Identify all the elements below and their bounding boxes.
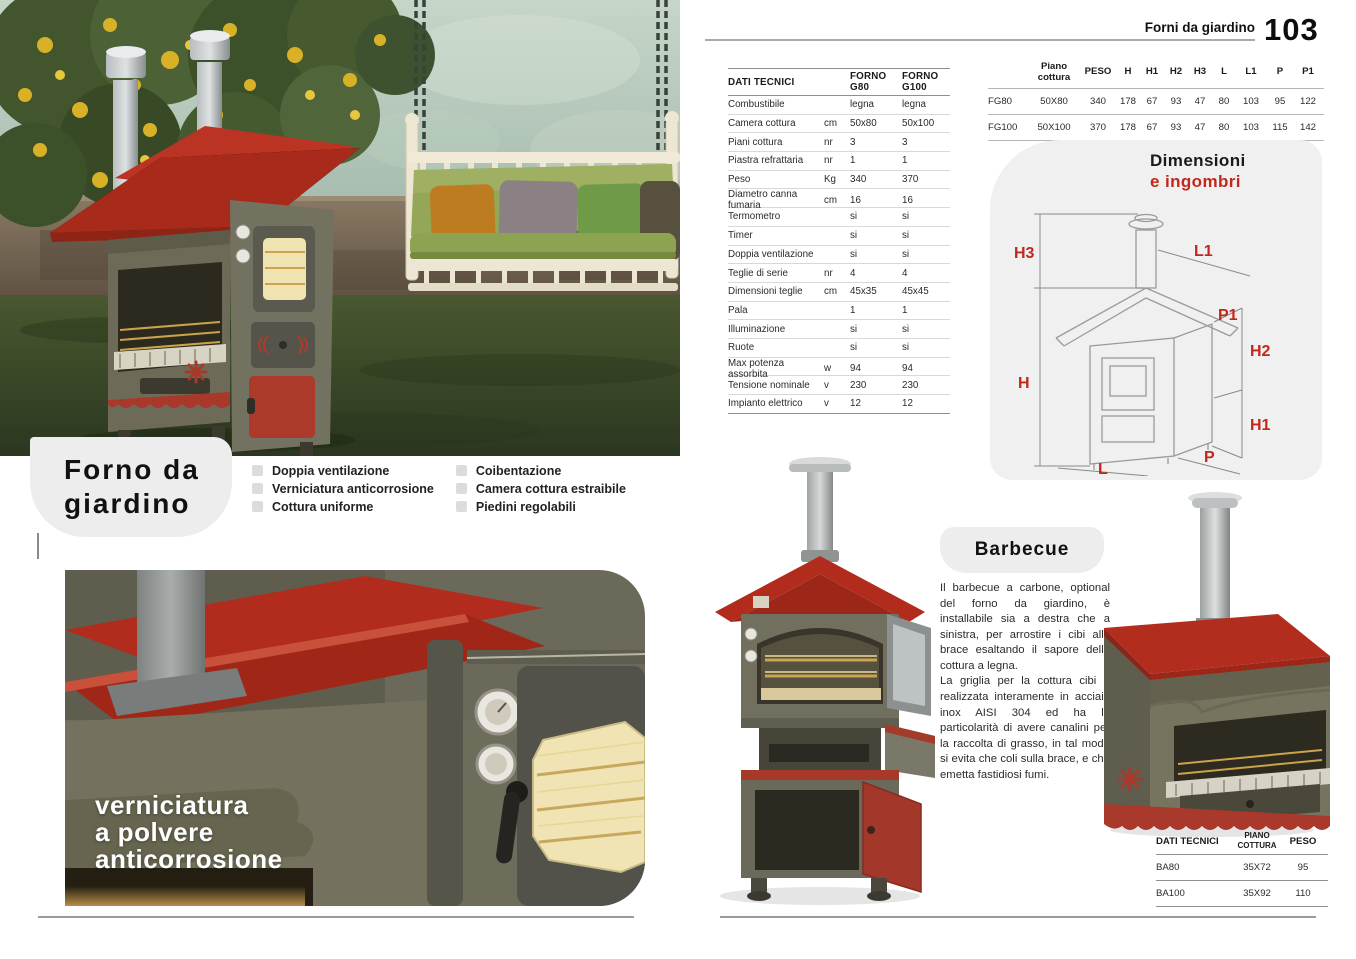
- dimensions-table: Piano cottura PESO H H1 H2 H3 L L1 P P1 …: [988, 56, 1324, 141]
- bullet-square-icon: [456, 465, 467, 476]
- specs-table-row: Camera cottura cm 50x80 50x100: [728, 115, 950, 134]
- barbecue-table-header: DATI TECNICI PIANO COTTURA PESO: [1156, 828, 1328, 854]
- garden-scene-photo: [0, 0, 680, 456]
- barbecue-illustration: [1092, 486, 1332, 838]
- specs-table-row: Tensione nominale v 230 230: [728, 376, 950, 395]
- specs-table-row: Combustibile legna legna: [728, 96, 950, 115]
- dim-label-p1: P1: [1218, 307, 1238, 324]
- feature-item: Doppia ventilazione: [252, 464, 434, 477]
- specs-table-row: Peso Kg 340 370: [728, 171, 950, 190]
- dim-label-l1: L1: [1194, 243, 1213, 260]
- specs-table-row: Termometro si si: [728, 208, 950, 227]
- title-divider: [37, 533, 39, 559]
- specs-table-row: Illuminazione si si: [728, 320, 950, 339]
- dim-label-h: H: [1018, 375, 1030, 392]
- page-number: 103: [1264, 12, 1319, 48]
- open-oven-photo: [695, 448, 945, 908]
- barbecue-paragraph-2: La griglia per la cottura cibi è realizz…: [940, 674, 1110, 783]
- feature-item: Piedini regolabili: [456, 500, 626, 513]
- barbecue-table-row: BA100 35X92 110: [1156, 880, 1328, 906]
- barbecue-photo: [1092, 486, 1332, 838]
- specs-table-row: Dimensioni teglie cm 45x35 45x45: [728, 283, 950, 302]
- features-list: Doppia ventilazione Verniciatura anticor…: [252, 464, 626, 513]
- specs-table-body: Combustibile legna legna Camera cottura …: [728, 96, 950, 414]
- garden-scene-illustration: [0, 0, 680, 456]
- bullet-square-icon: [456, 483, 467, 494]
- right-footer-rule: [720, 916, 1316, 918]
- specs-table-header: DATI TECNICI FORNO G80 FORNO G100: [728, 68, 950, 96]
- dimensions-table-header: Piano cottura PESO H H1 H2 H3 L L1 P P1: [988, 56, 1324, 88]
- sunburst-vent: [186, 362, 206, 382]
- dim-label-h1: H1: [1250, 417, 1271, 434]
- sunburst-vent: [1119, 768, 1141, 790]
- dimensions-table-row: FG80 50X80 340 178 67 93 47 80 103 95 12…: [988, 88, 1324, 114]
- barbecue-paragraph-1: Il barbecue a carbone, optional del forn…: [940, 581, 1110, 674]
- bullet-square-icon: [252, 465, 263, 476]
- specs-table-row: Pala 1 1: [728, 302, 950, 321]
- specs-table-row: Diametro canna fumaria cm 16 16: [728, 189, 950, 208]
- barbecue-heading-card: Barbecue: [940, 527, 1104, 573]
- specs-table-row: Piastra refrattaria nr 1 1: [728, 152, 950, 171]
- bullet-square-icon: [252, 483, 263, 494]
- bullet-square-icon: [252, 501, 263, 512]
- closeup-caption: verniciatura a polvere anticorrosione: [95, 792, 283, 873]
- specs-table-row: Piani cottura nr 3 3: [728, 133, 950, 152]
- specs-table-row: Max potenza assorbita w 94 94: [728, 358, 950, 377]
- page-title-card: Forno da giardino: [30, 437, 232, 537]
- dimensions-table-body: FG80 50X80 340 178 67 93 47 80 103 95 12…: [988, 88, 1324, 141]
- barbecue-title: Barbecue: [975, 539, 1070, 561]
- specs-table-row: Timer si si: [728, 227, 950, 246]
- dim-label-h3: H3: [1014, 245, 1035, 262]
- specs-table-row: Teglie di serie nr 4 4: [728, 264, 950, 283]
- header-rule: [705, 39, 1255, 41]
- dimensions-table-row: FG100 50X100 370 178 67 93 47 80 103 115…: [988, 114, 1324, 140]
- dim-label-l: L: [1098, 461, 1108, 476]
- dim-label-h2: H2: [1250, 343, 1271, 360]
- open-oven-illustration: [695, 448, 945, 908]
- specs-table-row: Doppia ventilazione si si: [728, 246, 950, 265]
- features-column-1: Doppia ventilazione Verniciatura anticor…: [252, 464, 434, 513]
- features-column-2: Coibentazione Camera cottura estraibile …: [456, 464, 626, 513]
- page-title: Forno da giardino: [30, 453, 200, 521]
- feature-item: Camera cottura estraibile: [456, 482, 626, 495]
- specs-table: DATI TECNICI FORNO G80 FORNO G100 Combus…: [728, 68, 950, 414]
- barbecue-description: Il barbecue a carbone, optional del forn…: [940, 581, 1110, 784]
- barbecue-table-row: BA80 35X72 95: [1156, 854, 1328, 880]
- barbecue-table: DATI TECNICI PIANO COTTURA PESO BA80 35X…: [1156, 828, 1328, 907]
- specs-table-row: Ruote si si: [728, 339, 950, 358]
- feature-item: Verniciatura anticorrosione: [252, 482, 434, 495]
- dimensions-diagram: H3 H L1 P1 H2 H1 P L: [998, 158, 1310, 476]
- bullet-square-icon: [456, 501, 467, 512]
- barbecue-table-body: BA80 35X72 95 BA100 35X92 110: [1156, 854, 1328, 907]
- dim-label-p: P: [1204, 449, 1215, 466]
- specs-table-row: Impianto elettrico v 12 12: [728, 395, 950, 414]
- feature-item: Coibentazione: [456, 464, 626, 477]
- feature-item: Cottura uniforme: [252, 500, 434, 513]
- left-footer-rule: [38, 916, 634, 918]
- section-title: Forni da giardino: [1020, 20, 1255, 35]
